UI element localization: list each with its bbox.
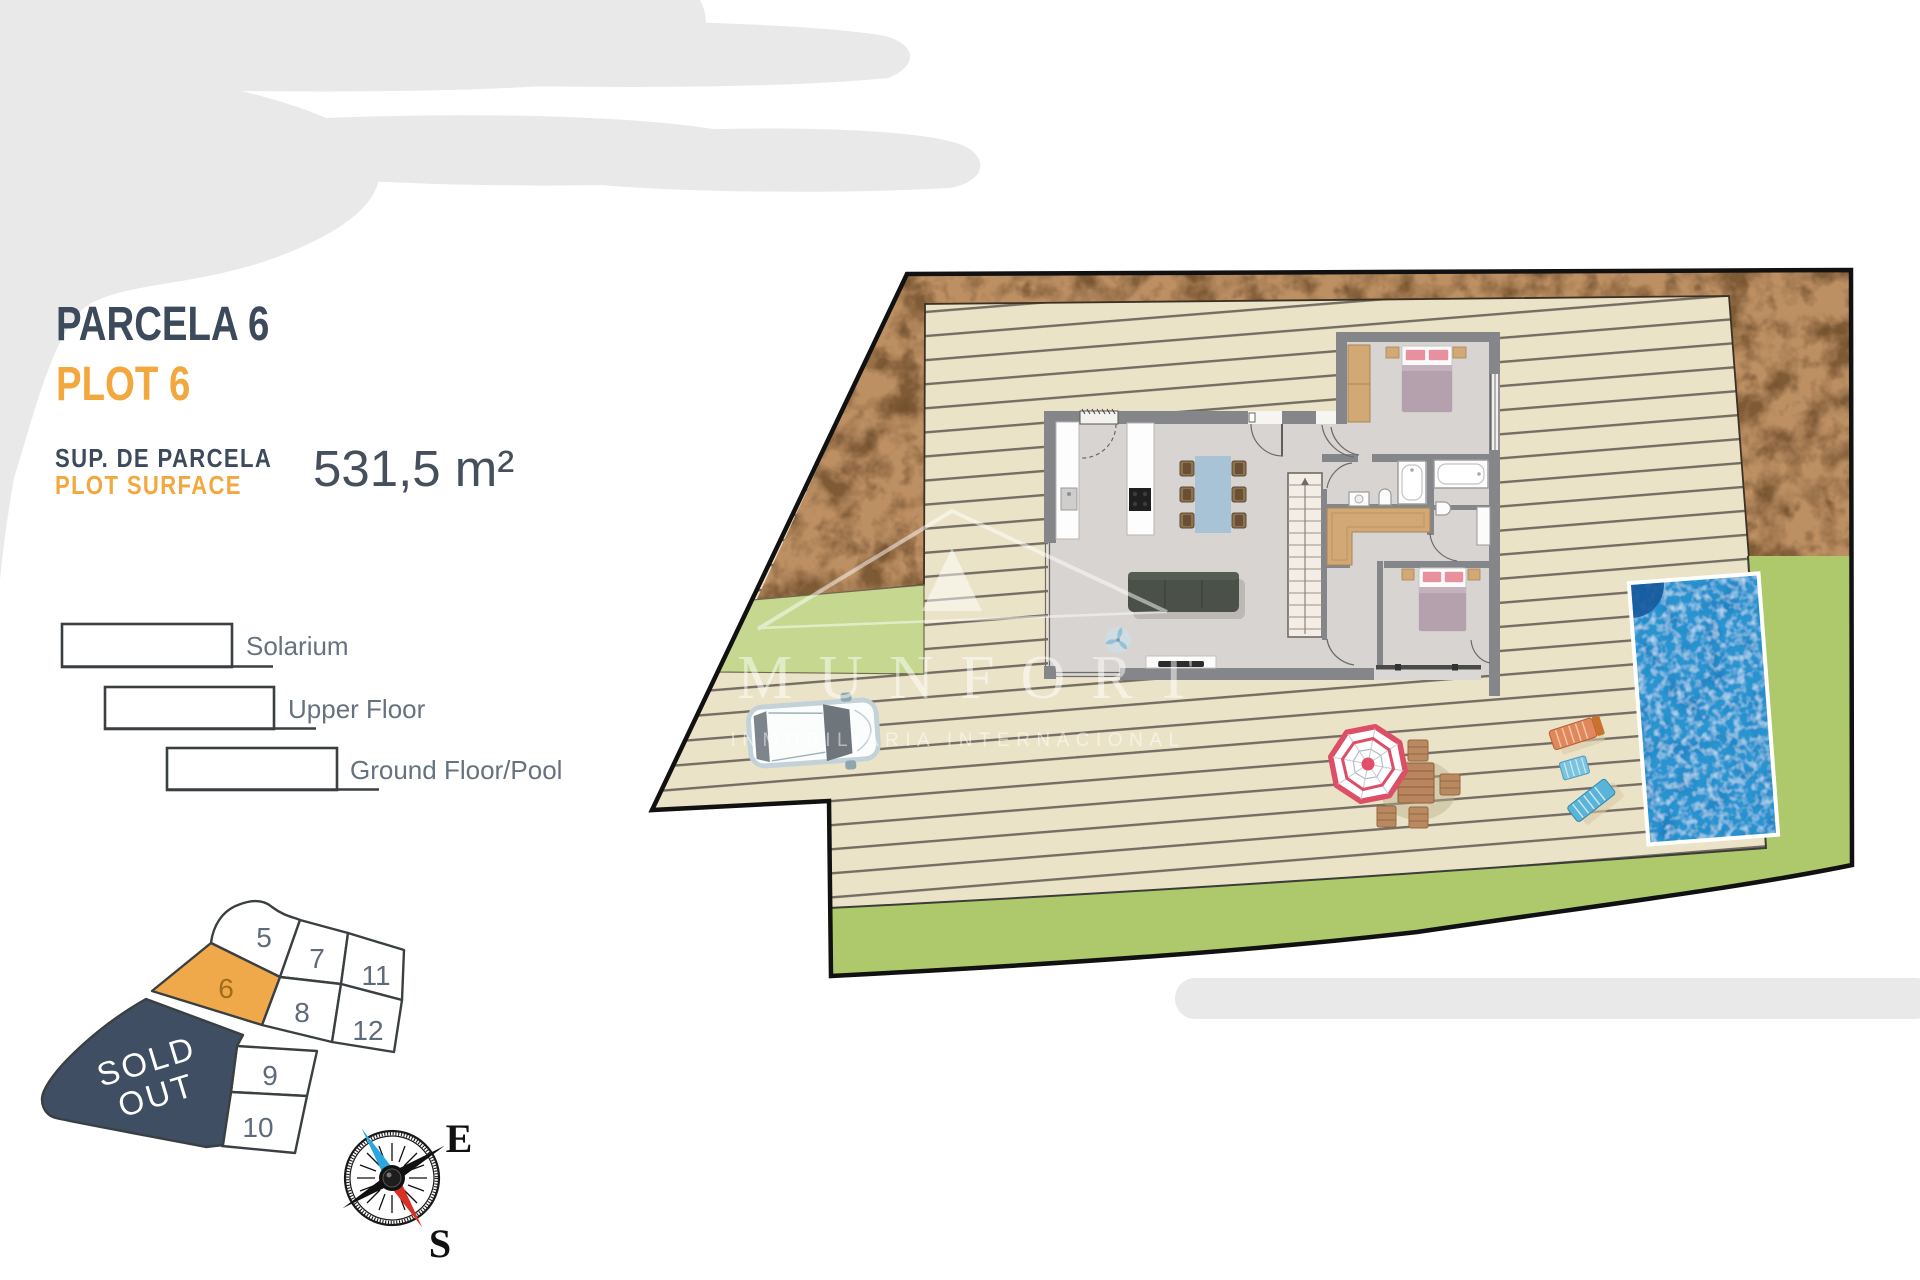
svg-text:531,5 m²: 531,5 m² — [313, 440, 514, 497]
svg-text:MUNFORT: MUNFORT — [737, 644, 1218, 712]
svg-text:SUP. DE PARCELA: SUP. DE PARCELA — [55, 444, 272, 473]
svg-text:PLOT SURFACE: PLOT SURFACE — [55, 471, 242, 500]
svg-text:INMOBILIARIA INTERNACIONAL: INMOBILIARIA INTERNACIONAL — [730, 730, 1185, 751]
svg-text:9: 9 — [262, 1060, 278, 1091]
svg-text:PLOT 6: PLOT 6 — [56, 358, 190, 411]
svg-text:6: 6 — [218, 973, 234, 1004]
svg-text:Solarium: Solarium — [246, 631, 349, 661]
svg-text:11: 11 — [361, 960, 390, 991]
svg-text:8: 8 — [294, 997, 310, 1028]
svg-text:E: E — [446, 1116, 473, 1161]
svg-text:S: S — [429, 1221, 451, 1266]
svg-text:7: 7 — [309, 943, 325, 974]
svg-text:PARCELA 6: PARCELA 6 — [56, 298, 269, 351]
svg-text:Ground Floor/Pool: Ground Floor/Pool — [350, 755, 562, 785]
svg-text:Upper Floor: Upper Floor — [288, 694, 426, 724]
svg-text:12: 12 — [352, 1015, 383, 1046]
svg-text:10: 10 — [242, 1112, 273, 1143]
svg-text:5: 5 — [256, 922, 272, 953]
